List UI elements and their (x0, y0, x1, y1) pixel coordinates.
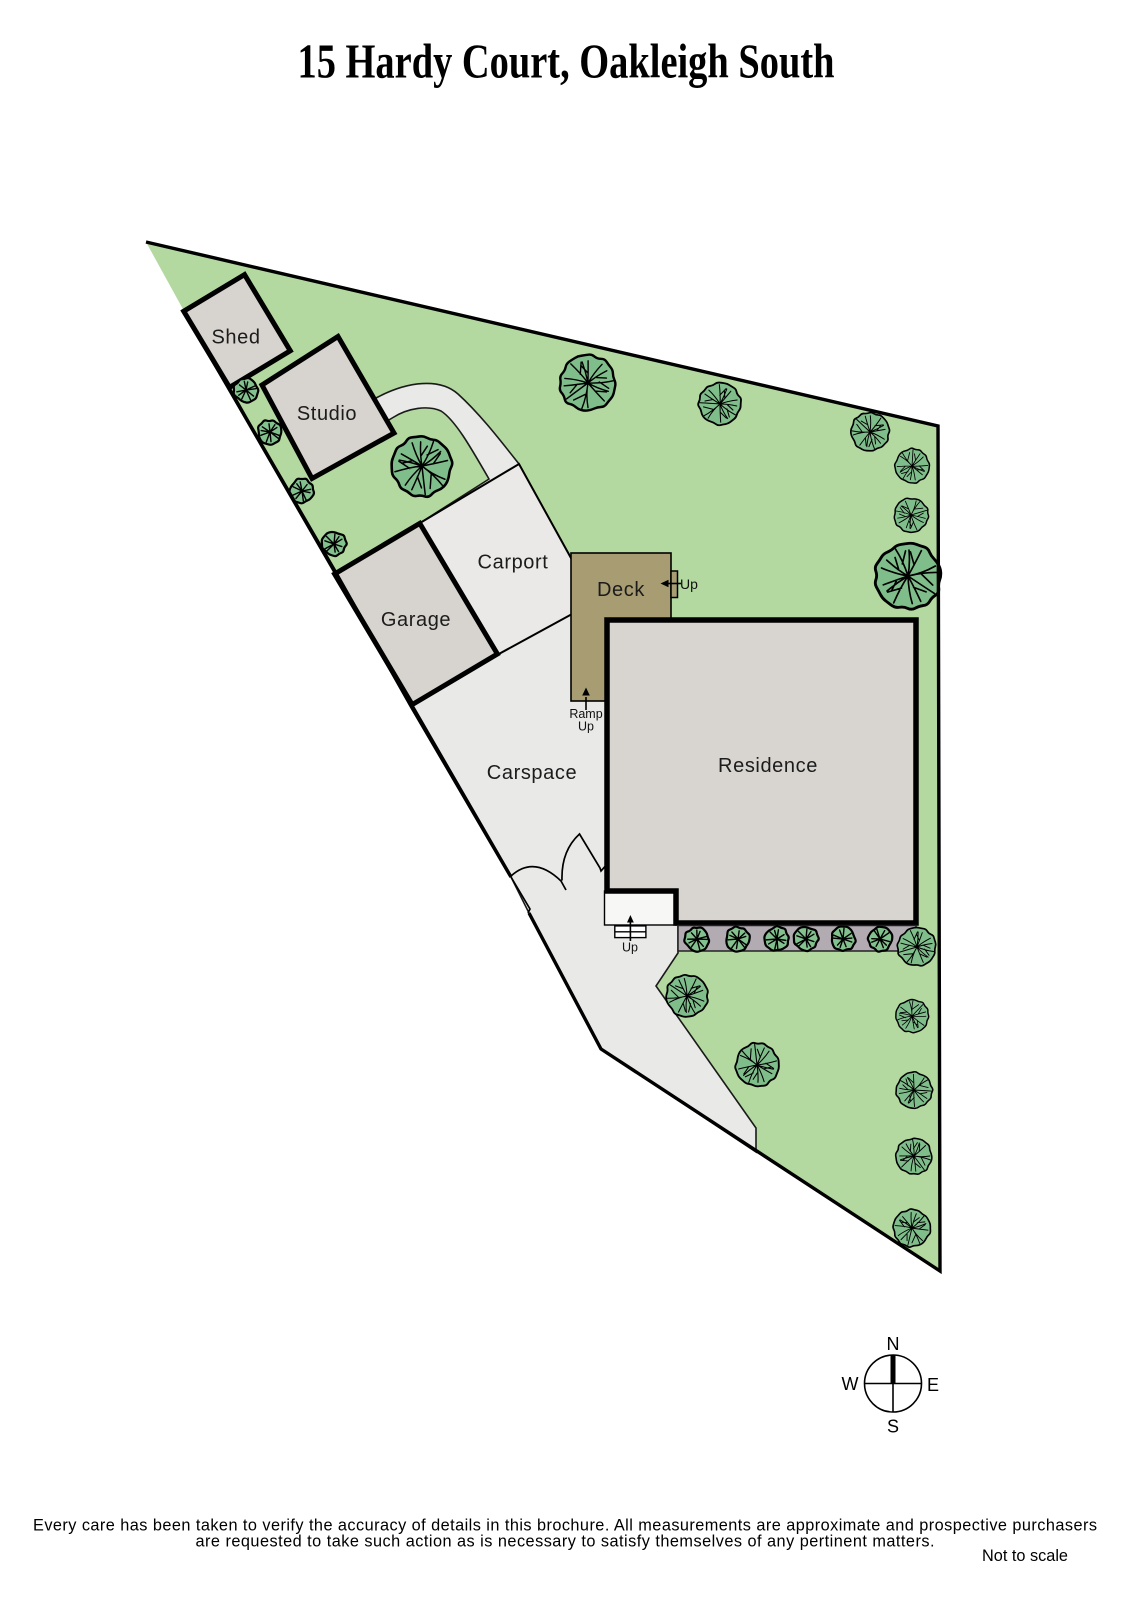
svg-text:W: W (842, 1374, 859, 1394)
svg-text:Up: Up (680, 576, 698, 592)
svg-text:S: S (887, 1417, 899, 1437)
svg-text:Carport: Carport (478, 552, 549, 574)
svg-text:Residence: Residence (718, 755, 818, 777)
svg-text:E: E (927, 1375, 939, 1395)
svg-text:N: N (887, 1334, 900, 1354)
svg-text:Up: Up (622, 941, 638, 955)
svg-text:Deck: Deck (597, 579, 645, 601)
svg-text:Not to scale: Not to scale (982, 1547, 1068, 1565)
svg-text:Shed: Shed (211, 327, 260, 349)
svg-text:Up: Up (578, 720, 594, 734)
svg-text:Studio: Studio (297, 403, 357, 425)
svg-text:15 Hardy Court, Oakleigh South: 15 Hardy Court, Oakleigh South (298, 34, 835, 89)
svg-text:Carspace: Carspace (487, 762, 577, 784)
svg-text:Garage: Garage (381, 609, 451, 631)
svg-text:are requested to take such act: are requested to take such action as is … (196, 1533, 935, 1551)
